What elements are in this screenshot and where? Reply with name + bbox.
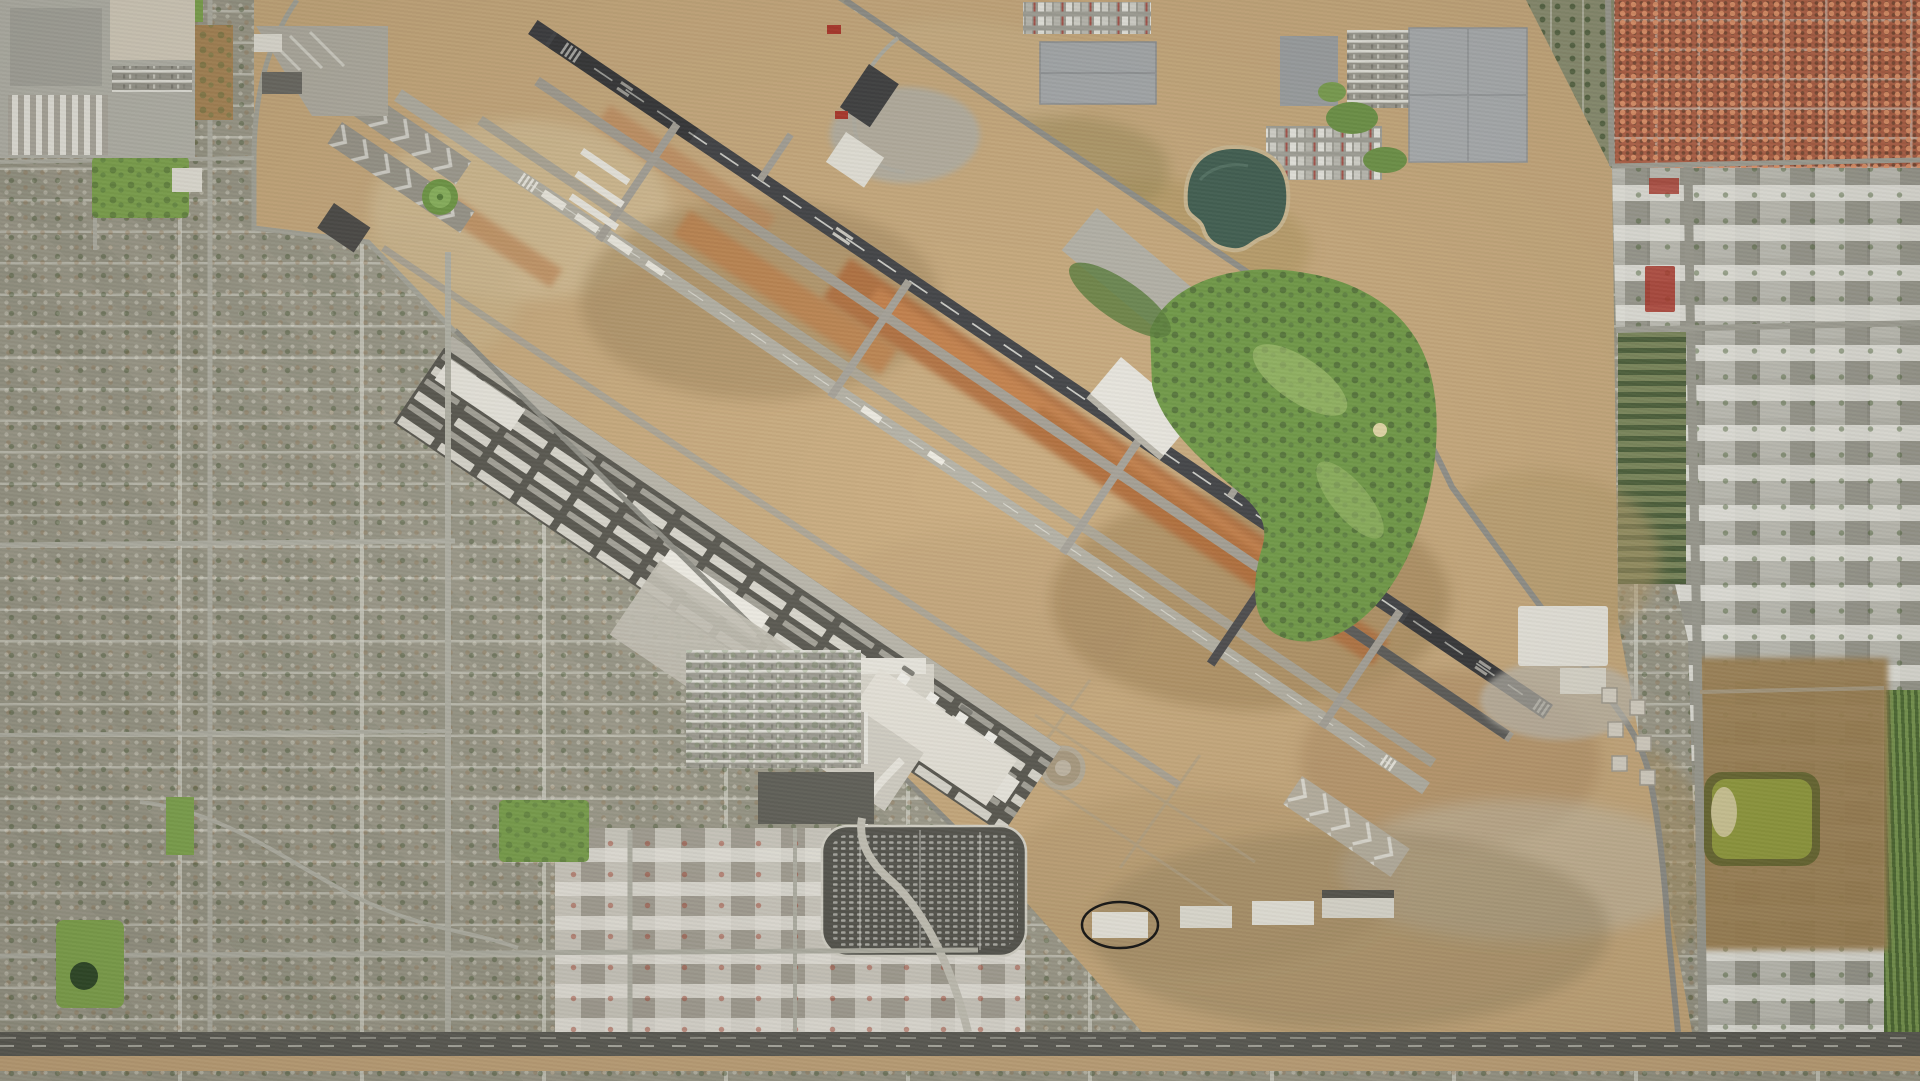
- factory-complex: [0, 0, 195, 158]
- red-roof-small-building: [835, 111, 848, 119]
- arterial-road: [0, 1032, 1920, 1071]
- parking-lot-trees: [686, 650, 861, 768]
- city-street-horizontal: [0, 731, 452, 735]
- factory-parking: [112, 66, 192, 92]
- pond-beach: [1711, 787, 1737, 837]
- curving-residential-street: [140, 802, 518, 948]
- north-south-road: [1608, 0, 1612, 166]
- east-west-street: [1612, 160, 1920, 166]
- satellite-map-canvas[interactable]: [0, 0, 1920, 1081]
- parking-garage: [758, 772, 874, 824]
- dark-pad: [262, 72, 302, 94]
- city-street-horizontal: [0, 950, 978, 956]
- white-building: [254, 34, 282, 52]
- red-roof-small-building: [827, 25, 841, 34]
- school-building: [172, 168, 202, 192]
- fbo-annex: [1560, 668, 1606, 694]
- economy-parking-lot: [822, 826, 1026, 956]
- lawn-patch: [1326, 102, 1378, 134]
- east-west-street: [1616, 323, 1920, 330]
- compass-rose: [422, 179, 458, 215]
- circular-pad-center: [1055, 760, 1071, 776]
- map-feature-overlay: [0, 0, 1920, 1081]
- factory-roof: [10, 8, 102, 86]
- lawn-patch: [1318, 82, 1346, 102]
- fbo-hangar-roof: [1518, 606, 1608, 666]
- warehouse-parking: [1347, 30, 1409, 108]
- annotated-white-building: [1092, 912, 1148, 938]
- factory-striped-roof: [8, 95, 108, 155]
- factory-roof: [110, 0, 195, 60]
- truck-yard: [1023, 2, 1151, 34]
- retention-pond-olive: [1704, 772, 1820, 866]
- lawn-patch: [1363, 147, 1407, 173]
- city-street-horizontal: [0, 541, 455, 545]
- dirt-shoulder: [0, 1056, 1920, 1071]
- sand-bunker: [1373, 423, 1387, 437]
